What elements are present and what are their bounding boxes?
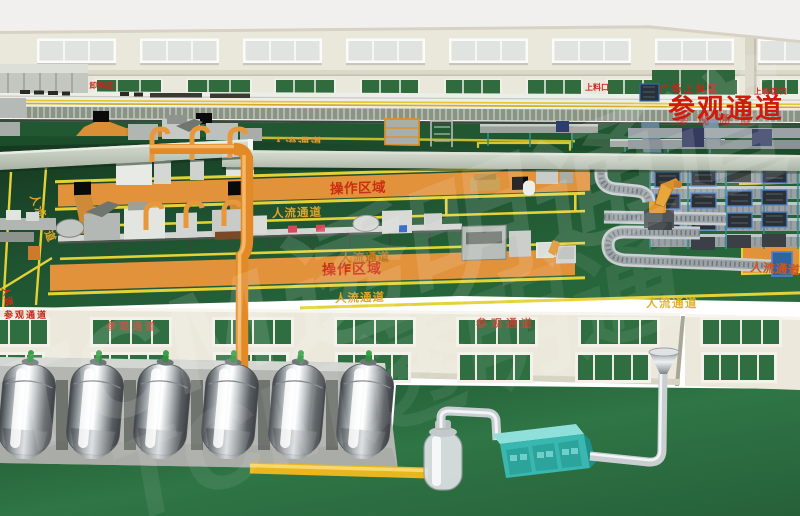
svg-text:上料口: 上料口: [585, 82, 609, 92]
svg-text:参观通道: 参观通道: [676, 112, 760, 127]
